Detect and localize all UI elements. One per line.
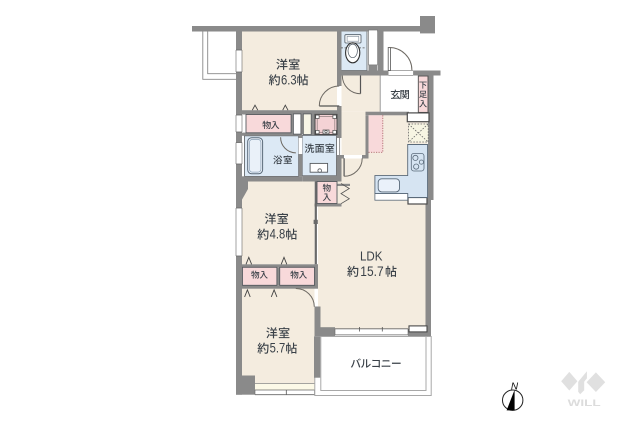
svg-text:15.7: 15.7	[360, 263, 383, 279]
svg-text:N: N	[511, 382, 519, 393]
svg-text:4.8: 4.8	[270, 226, 286, 242]
svg-text:LDK: LDK	[360, 248, 383, 263]
svg-text:6.3: 6.3	[281, 71, 297, 87]
svg-text:WILL: WILL	[568, 398, 602, 408]
svg-text:5.7: 5.7	[270, 340, 286, 356]
